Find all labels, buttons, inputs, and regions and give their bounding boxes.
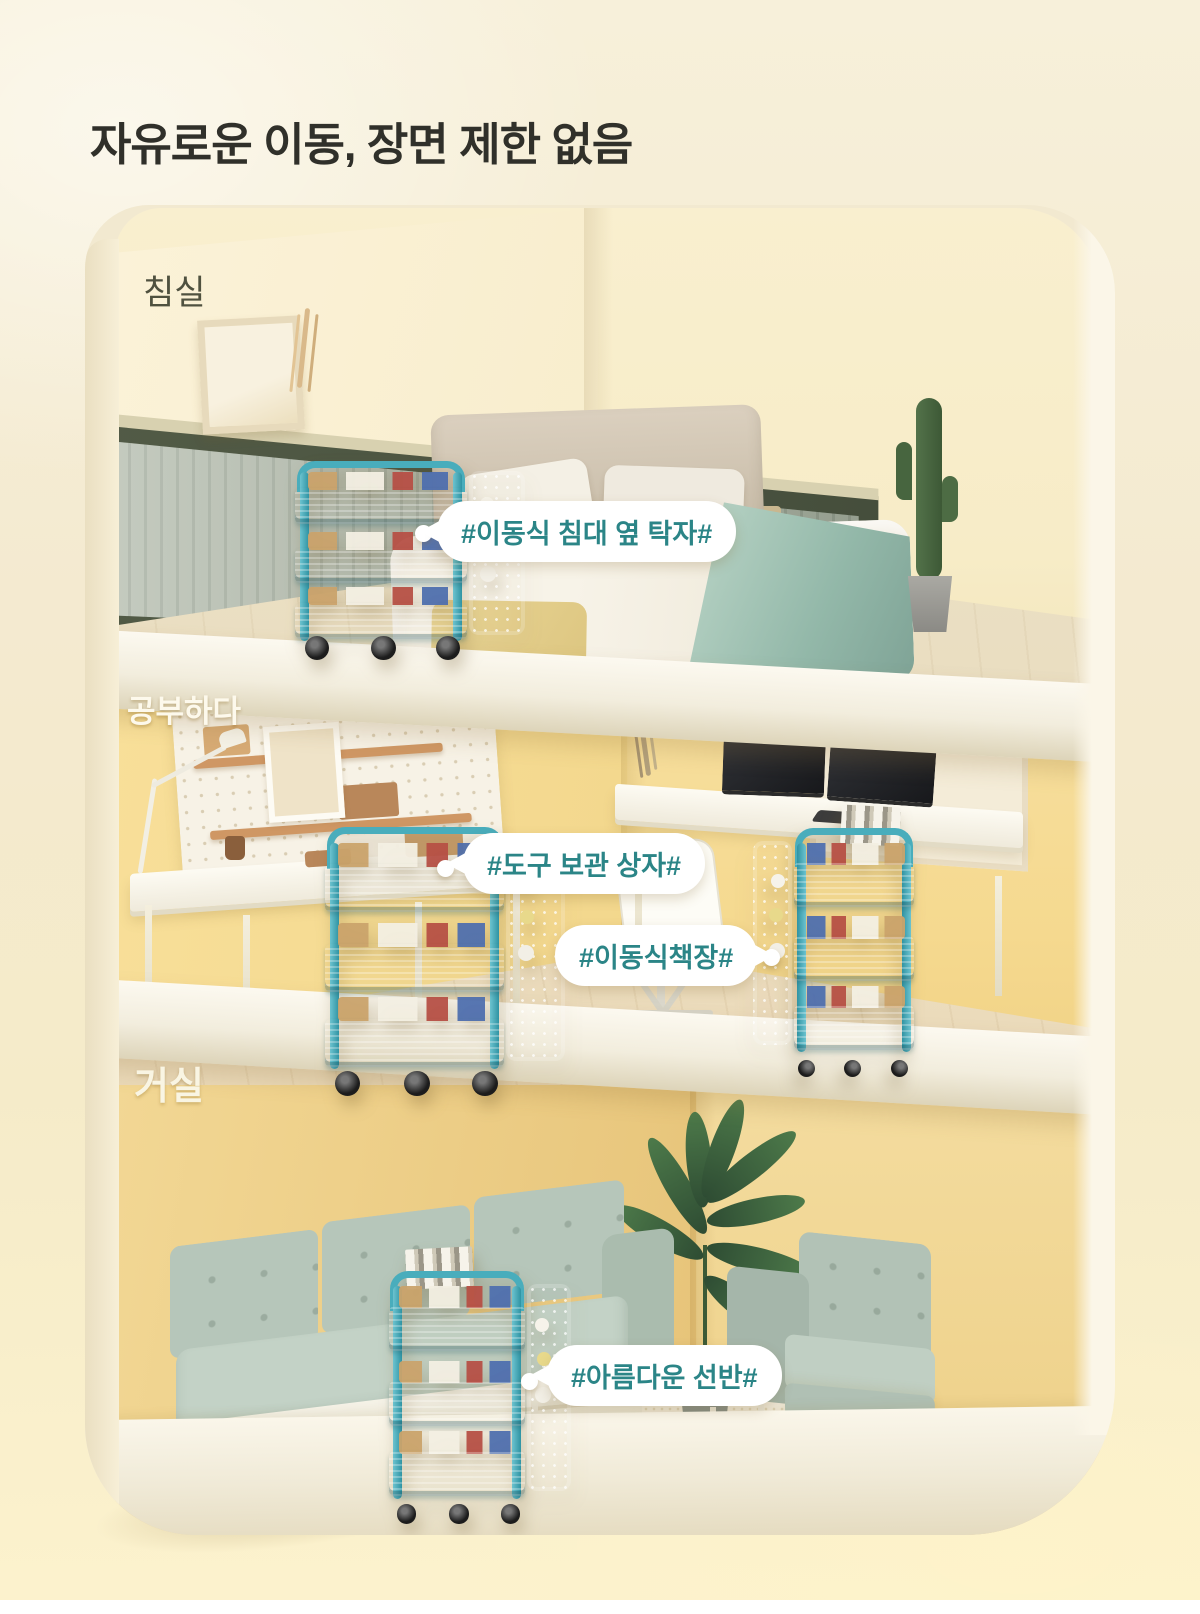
cart-basket — [389, 1381, 525, 1426]
cart-wheel — [371, 636, 395, 660]
cart-wheel — [501, 1504, 520, 1523]
cactus-pot — [906, 576, 954, 632]
product-scene: 자유로운 이동, 장면 제한 없음 — [0, 0, 1200, 1600]
outer-right-trim — [1073, 205, 1115, 1435]
cart-wheel — [891, 1060, 908, 1077]
cart-wheel — [798, 1060, 815, 1077]
callout-text: #이동식책장# — [579, 943, 733, 973]
desk-leg — [995, 876, 1002, 996]
outer-left-wall — [85, 239, 119, 1529]
cart-basket — [325, 944, 504, 992]
cactus-body — [916, 398, 942, 580]
cart-wheel — [844, 1060, 861, 1077]
utility-cart-living — [393, 1260, 571, 1532]
base-slab — [85, 1406, 1115, 1535]
cart-side-panel — [753, 841, 793, 1045]
pegboard-frame — [263, 722, 346, 823]
cart-basket — [794, 1005, 915, 1049]
cactus-arm — [942, 476, 958, 522]
callout-text: #아름다운 선반# — [571, 1363, 758, 1393]
cart-wheel — [335, 1071, 360, 1096]
cart-basket — [295, 548, 467, 584]
picture-frame — [197, 315, 305, 434]
cart-basket — [794, 936, 915, 980]
room-label-study: 공부하다 — [127, 686, 241, 731]
callout-bedside-table: #이동식 침대 옆 탁자# — [437, 501, 736, 562]
cart-frame — [797, 828, 911, 1075]
callout-tool-storage: #도구 보관 상자# — [463, 833, 705, 894]
cart-frame — [300, 461, 462, 659]
cart-wheel — [436, 636, 460, 660]
cart-wheel — [449, 1504, 468, 1523]
cart-wheel — [305, 636, 329, 660]
callout-text: #도구 보관 상자# — [487, 851, 681, 881]
callout-mobile-bookshelf: #이동식책장# — [555, 925, 757, 986]
callout-beautiful-shelf: #아름다운 선반# — [547, 1345, 782, 1406]
cart-basket — [389, 1306, 525, 1351]
cart-wheel — [397, 1504, 416, 1523]
cart-basket — [389, 1451, 525, 1496]
cactus-plant — [880, 398, 980, 633]
cart-items — [338, 997, 490, 1021]
callout-text: #이동식 침대 옆 탁자# — [461, 519, 712, 549]
cart-frame — [393, 1271, 521, 1521]
pencil-cup — [225, 836, 245, 860]
page-title: 자유로운 이동, 장면 제한 없음 — [90, 108, 632, 173]
room-label-living: 거실 — [134, 1055, 204, 1110]
cart-wheel — [472, 1071, 497, 1096]
cactus-arm — [896, 442, 912, 500]
cart-basket — [794, 862, 915, 906]
cart-basket — [295, 603, 467, 639]
cart-basket — [325, 1019, 504, 1067]
cart-wheel — [404, 1071, 429, 1096]
room-label-bedroom: 침실 — [143, 265, 206, 314]
bedroom-room — [115, 208, 1100, 705]
dollhouse-structure: 침실 공부하다 거실 #이동식 침대 옆 탁자# #도구 보관 상자# #이동식… — [85, 205, 1115, 1535]
